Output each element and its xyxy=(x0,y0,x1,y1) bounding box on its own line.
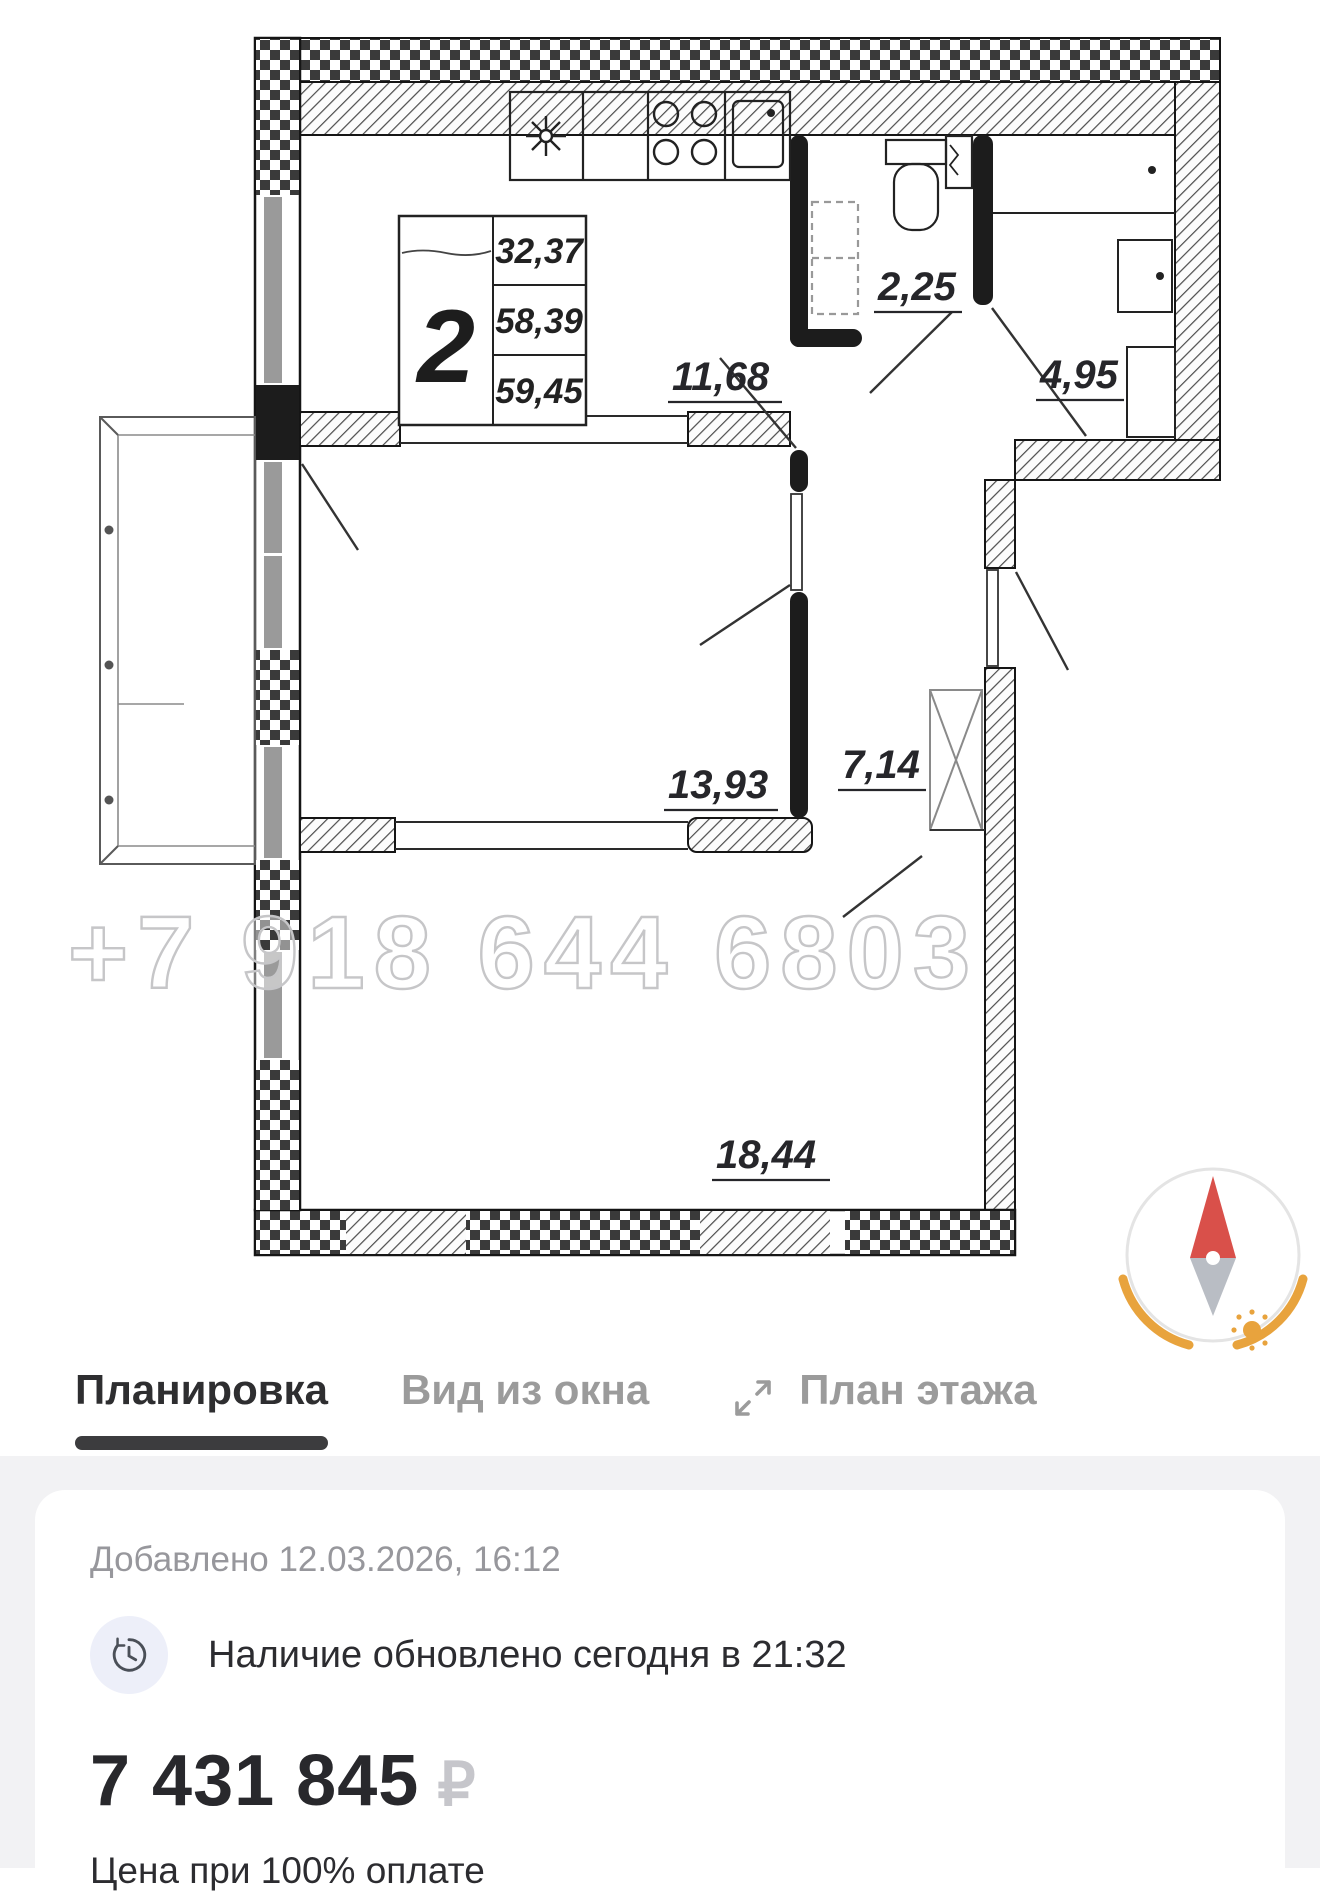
room-labels: 11,68 2,25 4,95 13,93 7,14 18,44 xyxy=(664,265,1124,1180)
balcony-door-swing xyxy=(302,464,358,550)
room-label-wc: 2,25 xyxy=(877,265,957,309)
tab-bar: Планировка Вид из окна План этажа xyxy=(0,1352,1320,1456)
water-heater-icon xyxy=(946,136,972,188)
washing-machine-dashed xyxy=(812,202,858,314)
room-label-living: 18,44 xyxy=(716,1133,816,1177)
wardrobe-shaft xyxy=(930,690,985,830)
price-note: Цена при 100% оплате xyxy=(90,1850,1230,1892)
wc-door-swing xyxy=(870,312,952,393)
watermark-phone: +7 918 644 6803 xyxy=(68,895,979,1010)
bedroom-door-swing xyxy=(700,585,790,645)
toilet-icon xyxy=(894,164,938,230)
tab-floor-plan[interactable]: План этажа xyxy=(799,1352,1036,1414)
floor-plan: 2 32,37 58,39 59,45 11,68 2,25 4,95 13,9… xyxy=(0,0,1320,1352)
details-section: Добавлено 12.03.2026, 16:12 Наличие обно… xyxy=(0,1456,1320,1868)
expand-icon[interactable] xyxy=(729,1374,777,1427)
cabinet-icon xyxy=(1127,347,1175,437)
tab-layout[interactable]: Планировка xyxy=(75,1352,328,1414)
toilet-tank-icon xyxy=(886,140,946,164)
unit-info-table: 2 32,37 58,39 59,45 xyxy=(399,216,586,425)
entrance-door-swing xyxy=(1016,572,1068,670)
room-label-bedroom: 13,93 xyxy=(668,763,768,807)
tab-layout-label: Планировка xyxy=(75,1366,328,1413)
room-label-bathroom: 4,95 xyxy=(1039,353,1119,397)
area-living: 32,37 xyxy=(495,232,584,271)
availability-text: Наличие обновлено сегодня в 21:32 xyxy=(208,1634,847,1677)
ruble-sign: ₽ xyxy=(437,1750,475,1820)
sink-star-icon xyxy=(526,116,566,156)
tab-active-indicator xyxy=(75,1436,328,1450)
info-card: Добавлено 12.03.2026, 16:12 Наличие обно… xyxy=(35,1490,1285,1868)
entrance-door-leaf xyxy=(987,570,998,666)
rooms-count: 2 xyxy=(415,289,475,405)
clock-update-icon xyxy=(90,1616,168,1694)
tab-window-view-label: Вид из окна xyxy=(401,1366,649,1413)
added-date: Добавлено 12.03.2026, 16:12 xyxy=(90,1540,1230,1580)
room-label-kitchen: 11,68 xyxy=(672,355,770,399)
price-row: 7 431 845 ₽ xyxy=(90,1740,1230,1822)
tab-floor-plan-label: План этажа xyxy=(799,1366,1036,1413)
tab-window-view[interactable]: Вид из окна xyxy=(401,1352,649,1414)
availability-row: Наличие обновлено сегодня в 21:32 xyxy=(90,1616,1230,1694)
room-label-hall: 7,14 xyxy=(842,743,920,787)
area-total: 58,39 xyxy=(495,302,583,341)
compass-icon xyxy=(1123,1169,1303,1351)
price-value: 7 431 845 xyxy=(90,1740,419,1822)
balcony xyxy=(100,417,255,864)
bedroom-door-leaf xyxy=(791,494,802,590)
area-with-balcony: 59,45 xyxy=(495,372,583,411)
